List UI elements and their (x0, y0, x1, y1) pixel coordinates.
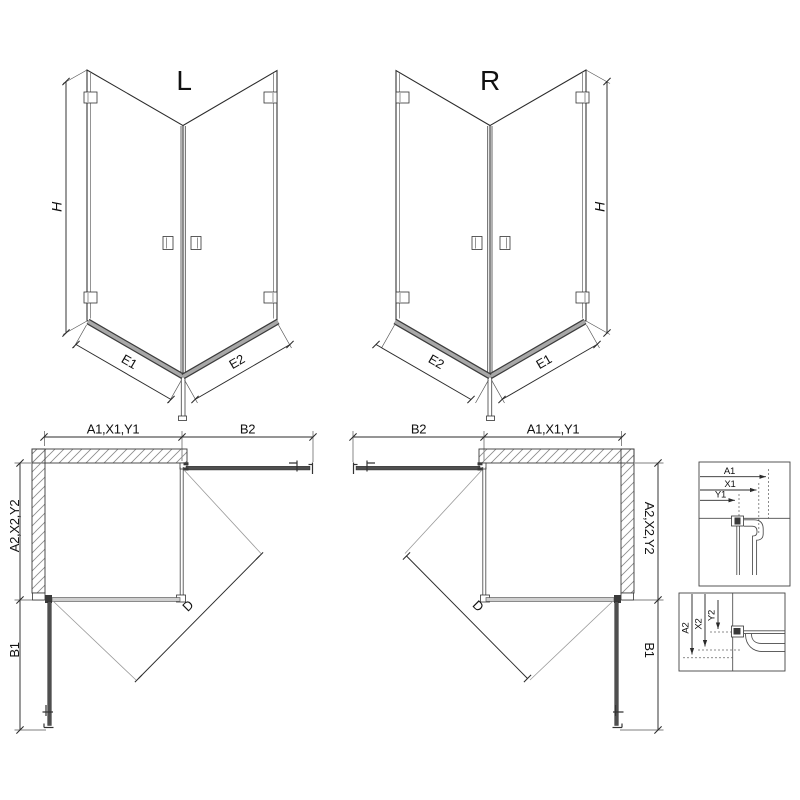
fixed-glass-side (177, 467, 186, 602)
hinge (264, 292, 277, 303)
depth-dim-label: A2,X2,Y2 (7, 500, 22, 553)
door-dim-label: B2 (240, 422, 255, 437)
height-dimension: H (586, 70, 611, 337)
door-knob (500, 237, 510, 250)
open-door-side (43, 602, 54, 728)
door-knob (163, 237, 173, 250)
wall-profile (33, 593, 46, 600)
width-dim-label: A1,X1,Y1 (527, 422, 580, 437)
door-dim-label: B1 (7, 642, 22, 657)
shower-enclosure-technical-drawing: L H (0, 0, 800, 800)
height-dim-label: H (592, 201, 608, 212)
door-dim-label: B1 (642, 642, 657, 657)
detail-dim-label: X1 (724, 479, 735, 490)
wall-top (32, 449, 187, 463)
diagonal-dimension: D (135, 552, 263, 682)
detail-box-profile-top: A1 X1 Y1 (699, 462, 790, 586)
hinge (396, 92, 409, 103)
open-door-top (354, 461, 483, 475)
diagonal-dim-label: D (179, 597, 196, 614)
fixed-glass-bottom (486, 598, 614, 602)
width-dim-label: A1,X1,Y1 (87, 422, 140, 437)
iso-view-left: L H (49, 65, 294, 421)
hinge (478, 462, 483, 465)
door-swing-line (53, 601, 136, 680)
hinge (264, 92, 277, 103)
iso-view-right: R H (372, 65, 610, 421)
edge-dim-label: E2 (426, 351, 447, 372)
detail-dim-label: A2 (681, 622, 692, 633)
variant-label-right: R (480, 65, 500, 96)
edge-dim-label: E1 (119, 351, 140, 372)
detail-box-profile-bottom: A2 X2 Y2 (679, 593, 785, 671)
door-knob (472, 237, 482, 250)
wall-top (479, 449, 634, 463)
diagonal-dim-label: D (470, 597, 487, 614)
door-dim-label: B2 (411, 422, 426, 437)
door-swing-line (184, 470, 261, 554)
variant-label-left: L (176, 65, 191, 96)
depth-dim-label: A2,X2,Y2 (642, 502, 657, 555)
hinge (396, 292, 409, 303)
edge-dim-label: E2 (226, 351, 247, 372)
fixed-glass-side (481, 467, 490, 602)
diagonal-dimension: D (403, 552, 531, 682)
detail-dim-label: A1 (724, 466, 735, 477)
wall-profile (621, 593, 634, 600)
plan-view-right: B2 A1,X1,Y1 A2,X2,Y2 B1 (349, 422, 663, 734)
fixed-glass-bottom (52, 598, 180, 602)
door-swing-line (530, 601, 613, 680)
wall-side (621, 449, 634, 593)
door-knob (191, 237, 201, 250)
hinge (184, 462, 189, 465)
height-dim-label: H (49, 201, 65, 212)
hinge (84, 92, 97, 103)
open-door-top (184, 461, 313, 475)
hinge (576, 92, 589, 103)
edge-dim-label: E1 (533, 351, 554, 372)
detail-dim-label: Y1 (715, 490, 726, 501)
drawing-canvas: L H (0, 0, 800, 800)
open-door-side (613, 602, 624, 728)
detail-dim-label: Y2 (707, 610, 718, 621)
door-swing-line (405, 470, 482, 554)
plan-view-left: A1,X1,Y1 B2 A2,X2,Y2 B1 (7, 422, 317, 734)
hinge (576, 292, 589, 303)
wall-side (32, 449, 45, 593)
hinge (84, 292, 97, 303)
detail-dim-label: X2 (694, 618, 705, 629)
height-dimension: H (49, 70, 88, 337)
